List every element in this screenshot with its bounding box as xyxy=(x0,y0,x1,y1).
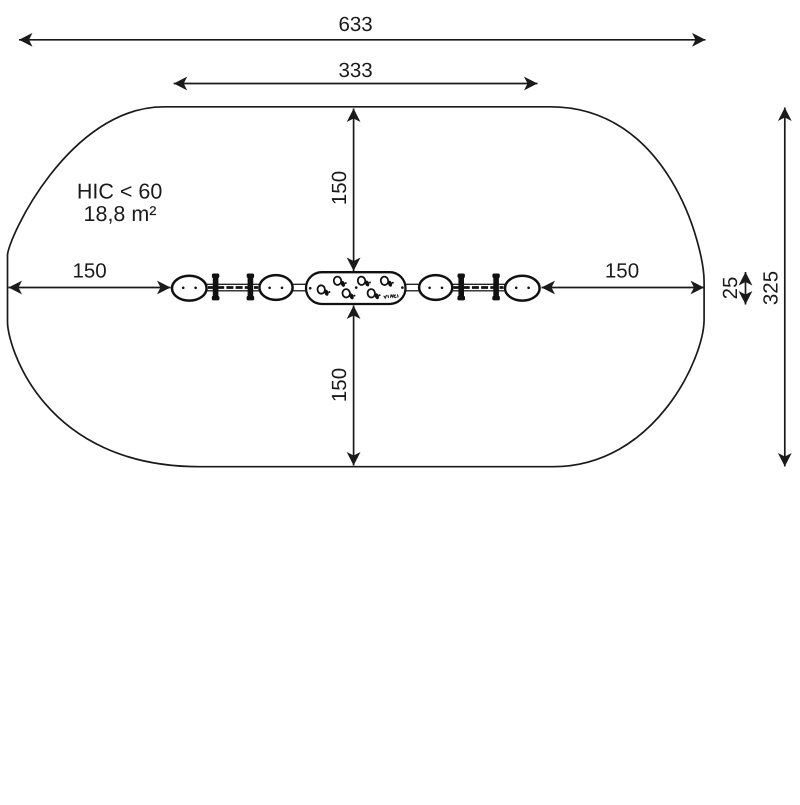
svg-text:633: 633 xyxy=(338,13,372,36)
svg-text:18,8 m²: 18,8 m² xyxy=(84,202,157,226)
svg-text:150: 150 xyxy=(328,368,351,402)
svg-text:HIC < 60: HIC < 60 xyxy=(77,180,162,204)
svg-text:150: 150 xyxy=(328,171,351,205)
svg-text:325: 325 xyxy=(760,271,783,305)
svg-text:150: 150 xyxy=(72,260,106,283)
svg-text:150: 150 xyxy=(605,260,639,283)
svg-text:25: 25 xyxy=(719,277,742,300)
svg-text:333: 333 xyxy=(338,59,372,82)
